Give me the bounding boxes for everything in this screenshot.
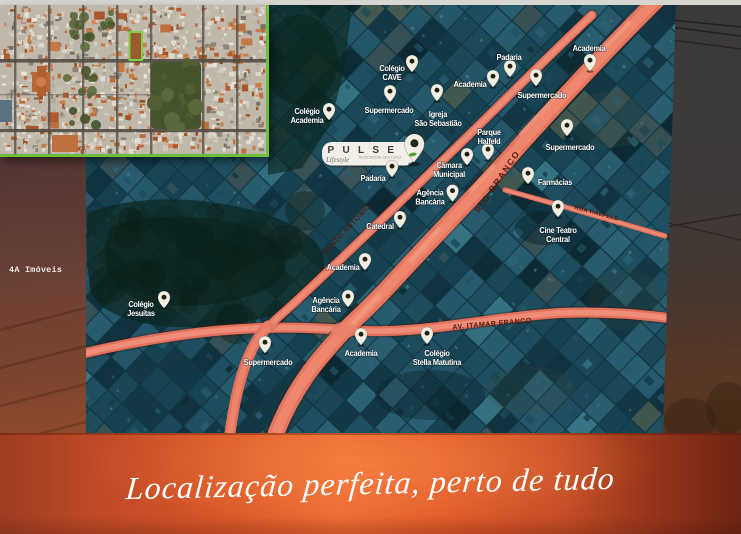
svg-text:Supermercado: Supermercado <box>244 357 293 367</box>
svg-text:Supermercado: Supermercado <box>365 105 414 115</box>
svg-text:ColégioAcademia: ColégioAcademia <box>291 106 325 125</box>
svg-text:ColégioCAVE: ColégioCAVE <box>379 63 405 82</box>
svg-text:CâmaraMunicipal: CâmaraMunicipal <box>433 160 465 179</box>
svg-text:ColégioJesuítas: ColégioJesuítas <box>127 299 155 318</box>
svg-text:Academia: Academia <box>327 262 361 272</box>
svg-text:Farmácias: Farmácias <box>538 177 573 187</box>
svg-text:Academia: Academia <box>345 348 379 358</box>
svg-text:Supermercado: Supermercado <box>518 90 567 100</box>
svg-text:Padaria: Padaria <box>361 173 387 183</box>
svg-text:AgênciaBancária: AgênciaBancária <box>415 188 445 207</box>
svg-text:Lifestyle: Lifestyle <box>325 157 349 164</box>
svg-text:Padaria: Padaria <box>497 52 523 62</box>
svg-text:Catedral: Catedral <box>366 221 394 231</box>
svg-text:Supermercado: Supermercado <box>546 142 595 152</box>
svg-text:Academia: Academia <box>573 43 607 53</box>
svg-text:AgênciaBancária: AgênciaBancária <box>311 295 341 314</box>
svg-text:RESIDENCIAL MULTIUSO: RESIDENCIAL MULTIUSO <box>359 155 402 159</box>
svg-text:ParqueHalfeld: ParqueHalfeld <box>477 127 501 146</box>
svg-text:Academia: Academia <box>454 79 488 89</box>
